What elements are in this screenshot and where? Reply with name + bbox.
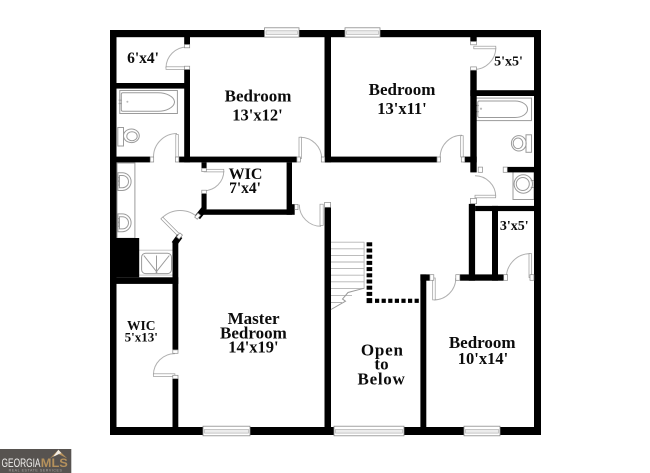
svg-text:REAL ESTATE SERVICES: REAL ESTATE SERVICES [9, 469, 63, 473]
svg-text:13'x12': 13'x12' [232, 106, 282, 125]
svg-text:13'x11': 13'x11' [377, 99, 427, 118]
svg-text:6'x4': 6'x4' [127, 50, 159, 67]
svg-text:7'x4': 7'x4' [229, 180, 261, 197]
svg-text:3'x5': 3'x5' [500, 219, 529, 234]
svg-text:Bedroom: Bedroom [369, 80, 436, 99]
svg-text:Bedroom: Bedroom [225, 87, 292, 106]
svg-text:14'x19': 14'x19' [228, 337, 278, 356]
svg-text:5'x5': 5'x5' [494, 55, 523, 70]
svg-text:5'x13': 5'x13' [125, 330, 158, 345]
svg-text:Below: Below [358, 370, 406, 389]
svg-text:10'x14': 10'x14' [458, 349, 508, 368]
